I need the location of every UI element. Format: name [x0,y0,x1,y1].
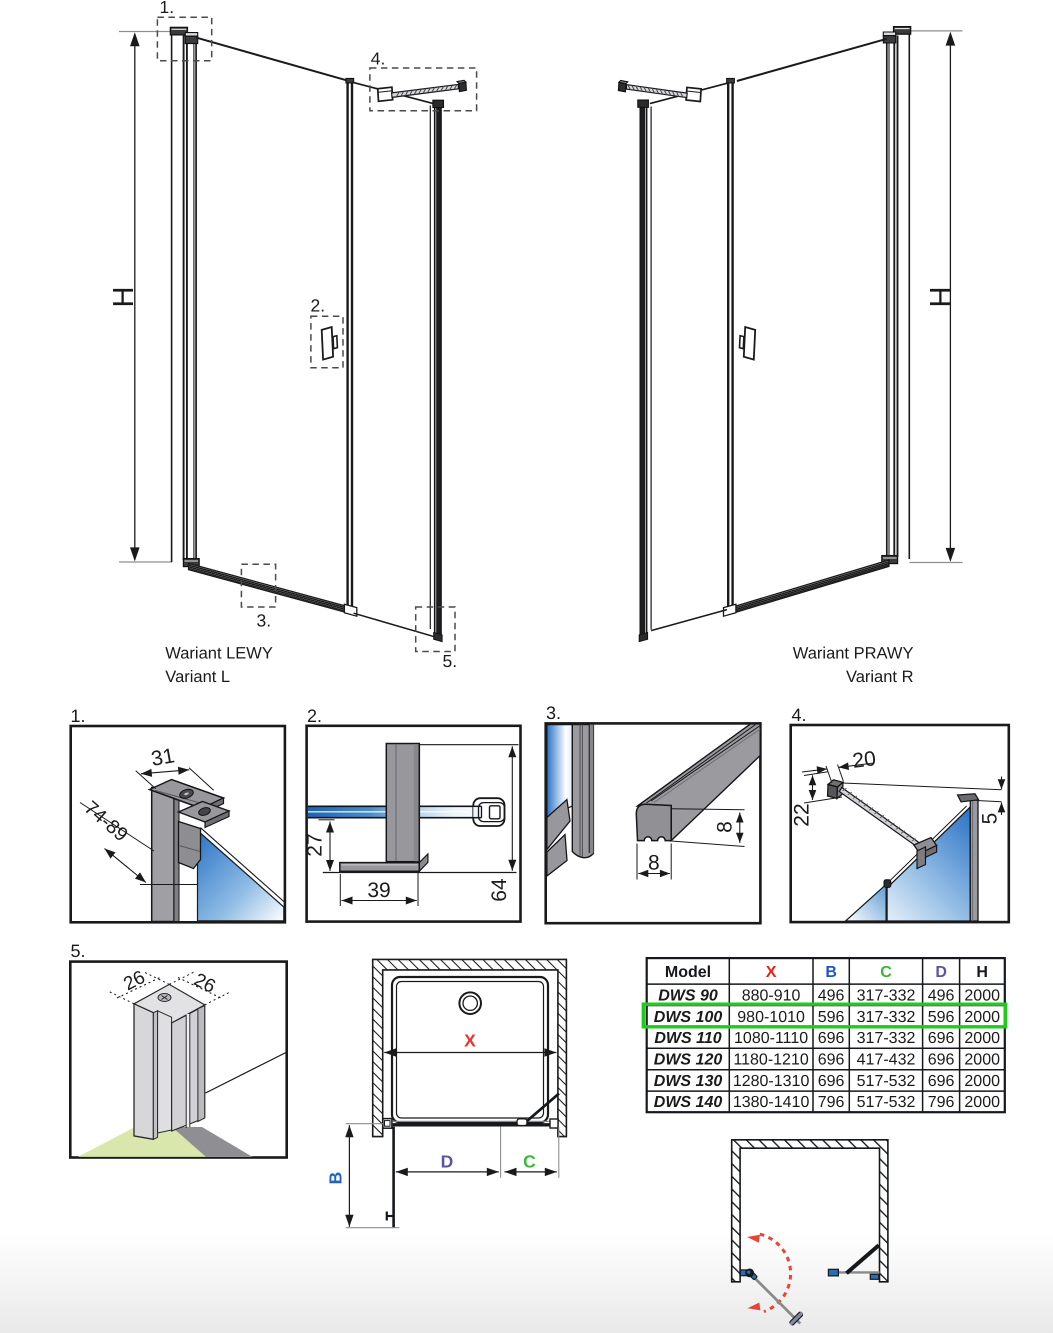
svg-text:880-910: 880-910 [742,987,801,1004]
svg-text:DWS 90: DWS 90 [658,987,718,1004]
svg-text:2.: 2. [307,706,322,726]
svg-text:1380-1410: 1380-1410 [733,1094,810,1111]
svg-text:3.: 3. [546,703,561,723]
svg-text:2000: 2000 [964,1052,1000,1069]
svg-text:B: B [326,1172,346,1185]
svg-text:2000: 2000 [964,1030,1000,1047]
svg-text:317-332: 317-332 [857,987,916,1004]
svg-text:496: 496 [818,987,845,1004]
svg-text:DWS 130: DWS 130 [654,1073,723,1090]
svg-text:796: 796 [928,1094,955,1111]
svg-text:31: 31 [149,744,176,771]
svg-text:DWS 140: DWS 140 [654,1094,723,1111]
svg-text:D: D [935,964,947,981]
svg-text:D: D [441,1152,454,1172]
svg-text:Variant L: Variant L [165,668,230,686]
svg-text:696: 696 [928,1030,955,1047]
svg-text:796: 796 [818,1094,845,1111]
svg-text:1180-1210: 1180-1210 [733,1052,808,1069]
svg-text:DWS 110: DWS 110 [654,1030,721,1047]
svg-text:X: X [464,1031,476,1051]
svg-text:H: H [976,964,988,981]
svg-text:39: 39 [367,879,390,902]
svg-text:4.: 4. [371,49,386,69]
svg-text:B: B [825,964,837,981]
svg-text:5: 5 [979,813,1002,825]
svg-text:696: 696 [928,1073,955,1090]
svg-text:696: 696 [818,1073,845,1090]
svg-text:Wariant PRAWY: Wariant PRAWY [793,645,914,663]
svg-text:417-432: 417-432 [857,1052,916,1069]
svg-text:Variant R: Variant R [846,668,914,686]
svg-text:8: 8 [648,852,660,875]
svg-text:2000: 2000 [964,1009,1000,1026]
svg-text:H: H [923,287,955,308]
svg-text:696: 696 [818,1052,845,1069]
svg-text:3.: 3. [257,611,272,631]
svg-text:496: 496 [928,987,955,1004]
svg-text:X: X [766,964,777,981]
svg-text:317-332: 317-332 [857,1009,916,1026]
svg-text:20: 20 [851,747,877,773]
svg-text:1280-1310: 1280-1310 [733,1073,810,1090]
svg-text:5.: 5. [443,651,458,671]
svg-text:4.: 4. [792,705,807,725]
svg-text:8: 8 [714,821,737,833]
svg-text:2000: 2000 [964,1094,1000,1111]
svg-text:517-532: 517-532 [857,1094,916,1111]
svg-text:1.: 1. [71,706,86,726]
svg-text:1.: 1. [160,0,175,17]
svg-text:Model: Model [665,964,711,981]
svg-text:27: 27 [304,833,327,856]
svg-text:C: C [523,1152,536,1172]
svg-text:317-332: 317-332 [857,1030,916,1047]
svg-text:517-532: 517-532 [857,1073,916,1090]
svg-text:64: 64 [488,878,511,902]
svg-text:596: 596 [928,1009,955,1026]
svg-text:2000: 2000 [964,1073,1000,1090]
svg-text:DWS 120: DWS 120 [654,1052,723,1069]
svg-text:696: 696 [818,1030,845,1047]
svg-text:Wariant LEWY: Wariant LEWY [165,645,273,663]
svg-text:22: 22 [791,803,814,826]
svg-text:1080-1110: 1080-1110 [734,1030,808,1047]
svg-text:H: H [108,287,140,308]
svg-text:DWS 100: DWS 100 [654,1009,723,1026]
svg-text:C: C [880,964,892,981]
svg-text:2000: 2000 [964,987,1000,1004]
svg-text:696: 696 [928,1052,955,1069]
svg-text:2.: 2. [311,296,326,316]
svg-text:980-1010: 980-1010 [737,1009,805,1026]
svg-text:596: 596 [818,1009,845,1026]
svg-text:5.: 5. [71,941,86,961]
